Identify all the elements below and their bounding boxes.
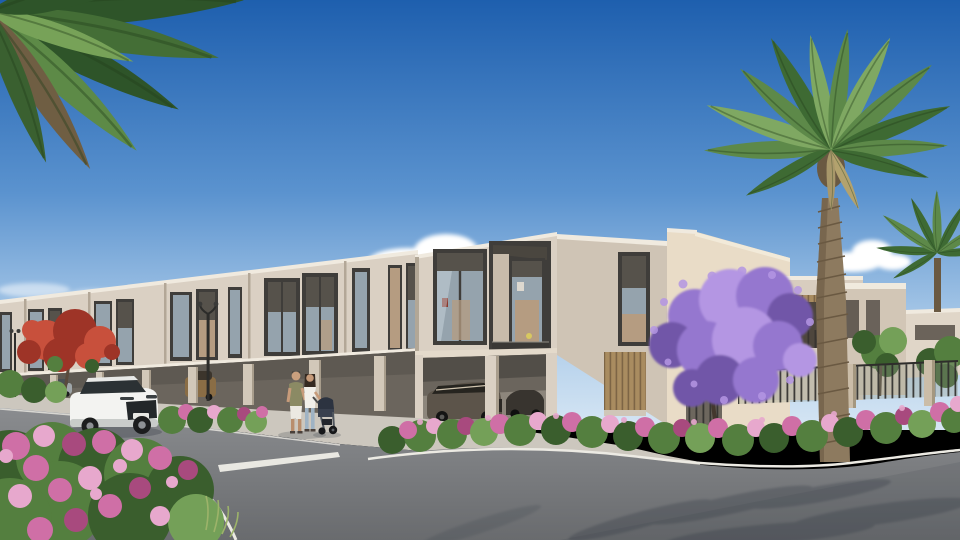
- window-bay-2: [489, 241, 551, 351]
- rendered-scene: [0, 0, 960, 540]
- scene-canvas: [0, 0, 960, 540]
- entrance-door: [604, 352, 646, 412]
- window-bay-1: [433, 249, 487, 345]
